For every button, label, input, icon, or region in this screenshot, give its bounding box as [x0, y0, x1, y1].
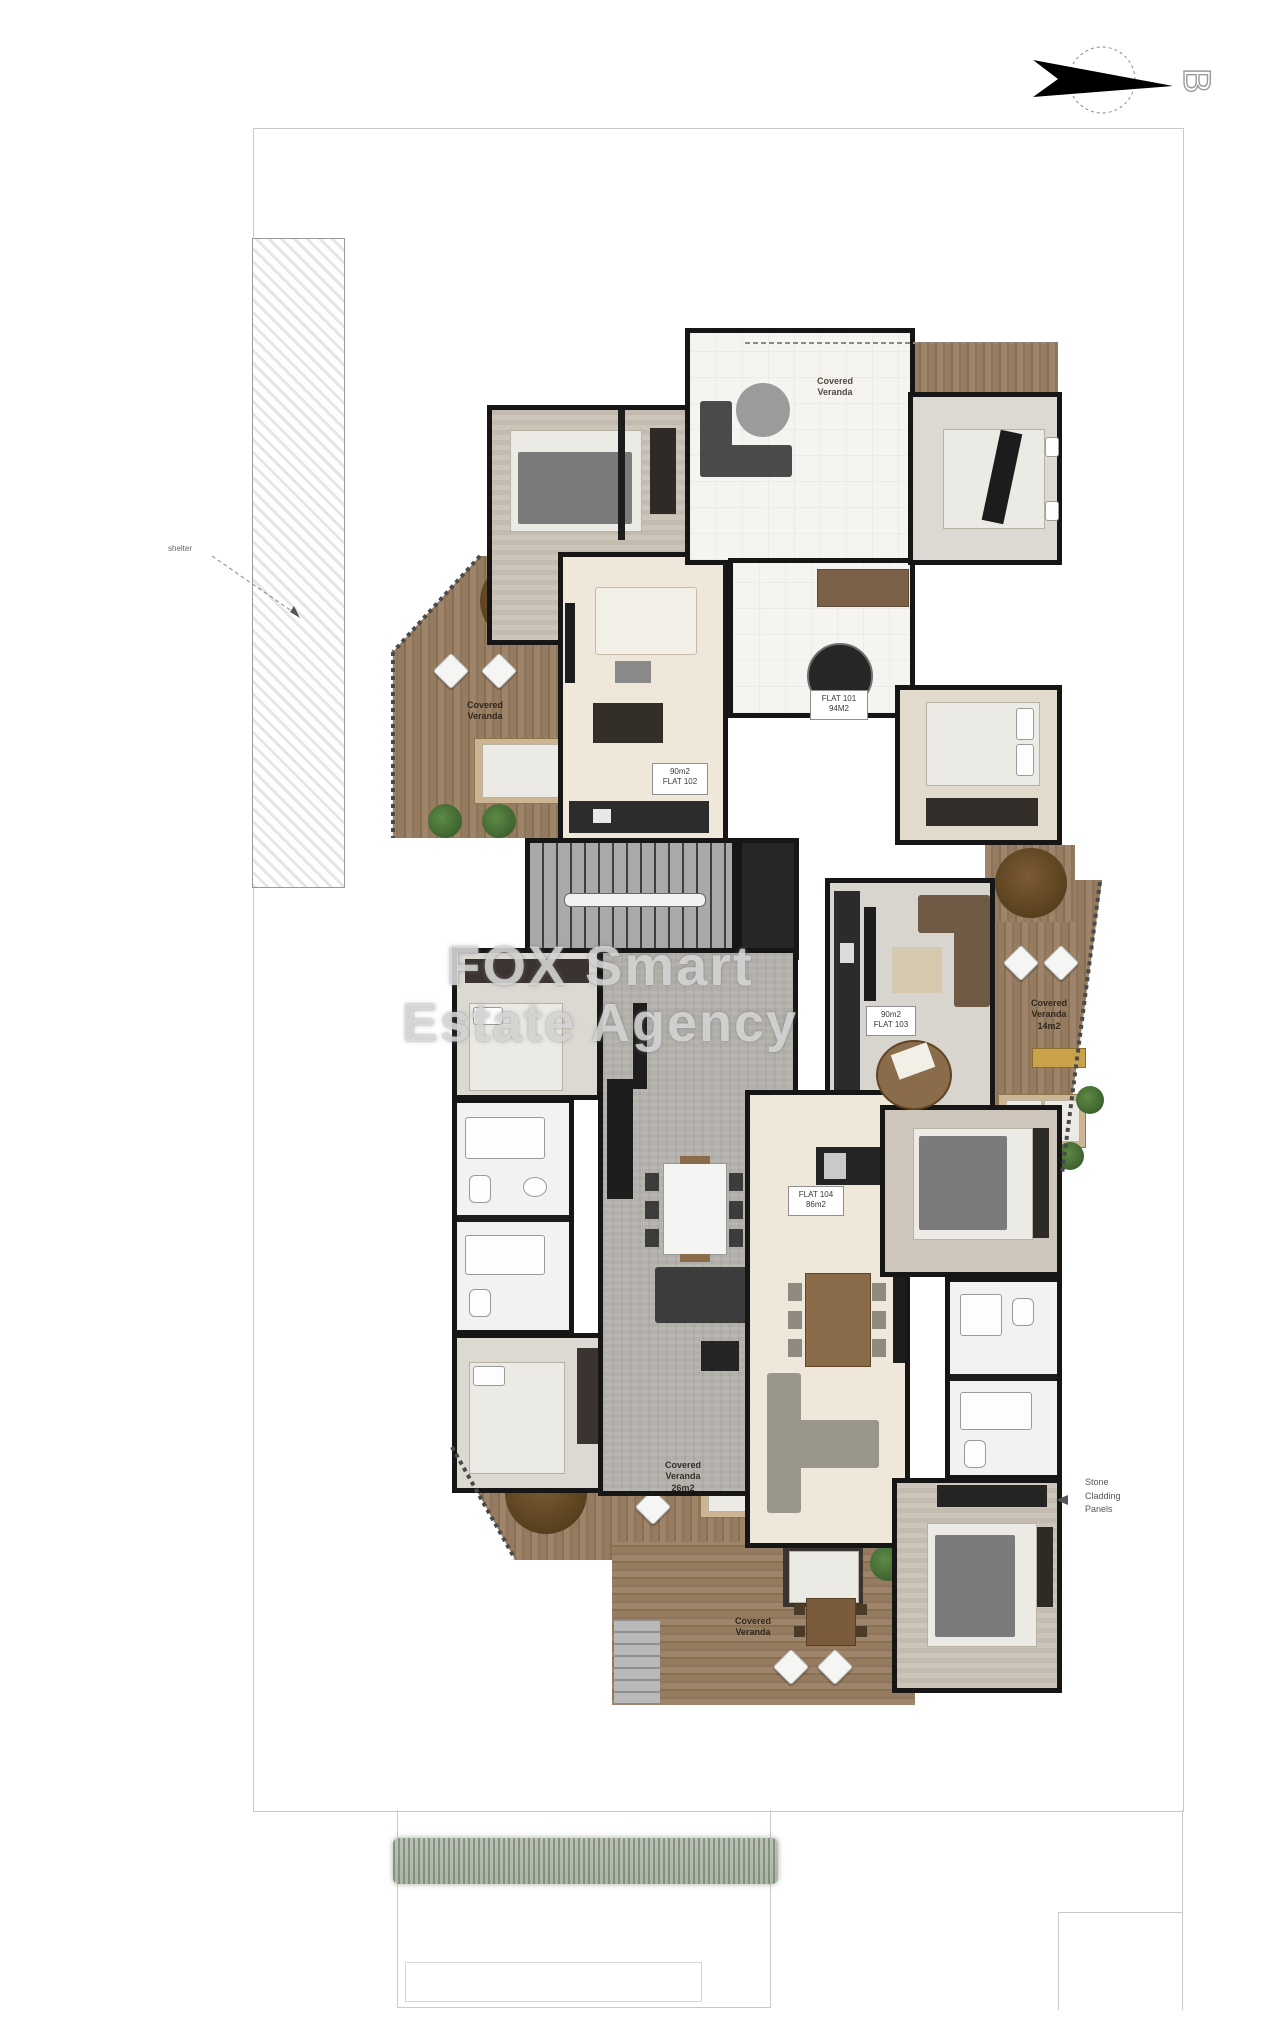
living-room-flat-top: [685, 328, 915, 565]
dining-chair: [645, 1229, 659, 1247]
bathtub: [465, 1235, 545, 1275]
table-runner: [891, 1042, 936, 1079]
site-parking-rect: [405, 1962, 702, 2002]
sofa: [954, 895, 990, 1007]
bedroom-br-2: [892, 1478, 1062, 1693]
bed-blanket: [935, 1535, 1015, 1637]
site-line-right3: [1058, 1912, 1183, 1913]
site-line-right2: [1182, 1810, 1183, 2010]
dining-chair: [729, 1229, 743, 1247]
table-end: [680, 1156, 710, 1164]
bathrooms-bl: [452, 1098, 574, 1335]
wardrobe: [1037, 1527, 1053, 1607]
outdoor-table: [806, 1598, 856, 1646]
north-arrow-icon: [1033, 60, 1173, 97]
kitchen-counter: [817, 569, 909, 607]
pillow: [473, 1366, 505, 1386]
outdoor-chair: [794, 1604, 805, 1615]
veranda-top-label: CoveredVeranda: [800, 376, 870, 399]
pillow: [1016, 708, 1034, 740]
bathrooms-br: [945, 1277, 1062, 1480]
stone-cladding-note: Stone Cladding Panels: [1085, 1476, 1155, 1517]
tv-unit: [893, 1263, 905, 1363]
watermark: FOX Smart Estate Agency: [340, 938, 860, 1053]
kitchen-sink: [593, 809, 611, 823]
toilet: [469, 1175, 491, 1203]
flat-bottom-label: FLAT 10486m2: [788, 1186, 844, 1216]
nightstand: [1045, 501, 1059, 521]
bathtub: [960, 1392, 1032, 1430]
dining-chair: [788, 1283, 802, 1301]
bedroom-mid-right: [895, 685, 1062, 845]
compass-letter: B: [1175, 68, 1217, 93]
shower: [960, 1294, 1002, 1336]
north-arrow-compass: B: [980, 18, 1260, 128]
dining-table: [663, 1163, 727, 1255]
plant-icon: [1076, 1086, 1104, 1114]
bedroom-top-right: [908, 392, 1062, 565]
tree-icon: [995, 848, 1067, 918]
dining-chair: [788, 1311, 802, 1329]
nightstand: [1045, 437, 1059, 457]
veranda-bottom-left-label: CoveredVeranda26m2: [650, 1460, 716, 1494]
daybed-mattress: [482, 744, 562, 798]
outdoor-cushion-bench: [1032, 1048, 1086, 1068]
stair-handrail: [564, 893, 706, 907]
interior-wall: [618, 410, 625, 540]
tv-unit: [864, 907, 876, 1001]
tv-unit: [565, 603, 575, 683]
watermark-line1: FOX Smart: [340, 938, 860, 994]
flat-left-label: 90m2FLAT 102: [652, 763, 708, 795]
dining-table: [805, 1273, 871, 1367]
window-sill: [937, 1485, 1047, 1507]
dining-chair: [729, 1201, 743, 1219]
dining-chair: [645, 1201, 659, 1219]
sink: [523, 1177, 547, 1197]
table-end: [680, 1254, 710, 1262]
kitchen-counter: [607, 1079, 633, 1199]
veranda-bottom-center-label: CoveredVeranda: [722, 1616, 784, 1639]
dining-chair: [788, 1339, 802, 1357]
flat-top-label: FLAT 10194M2: [810, 690, 868, 720]
pillow: [1016, 744, 1034, 776]
wardrobe: [650, 428, 676, 514]
shelter-label: shelter: [168, 543, 192, 555]
wardrobe: [926, 798, 1038, 826]
outdoor-chair: [856, 1604, 867, 1615]
outdoor-chair: [856, 1626, 867, 1637]
coffee-table: [701, 1341, 739, 1371]
dining-chair: [872, 1339, 886, 1357]
veranda-right-label: CoveredVeranda14m2: [1014, 998, 1084, 1032]
interior-wall: [457, 1215, 569, 1222]
bedroom-br-1: [880, 1105, 1062, 1277]
round-dining-table: [876, 1040, 952, 1110]
plant-icon: [482, 804, 516, 838]
bed-blanket: [518, 452, 632, 524]
dining-chair: [729, 1173, 743, 1191]
veranda-left-label: CoveredVeranda: [448, 700, 522, 723]
round-rug: [736, 383, 790, 437]
kitchen-appliance: [824, 1153, 846, 1179]
hedge: [393, 1838, 778, 1884]
kitchen-counter: [569, 801, 709, 833]
sofa: [767, 1420, 879, 1468]
outdoor-chair: [794, 1626, 805, 1637]
exterior-steps: [614, 1620, 660, 1703]
coffee-table: [615, 661, 651, 683]
sofa: [700, 445, 792, 477]
dining-chair: [872, 1311, 886, 1329]
covered-parking-hatch: [252, 238, 345, 888]
toilet: [964, 1440, 986, 1468]
flat-right-label: 90m2FLAT 103: [866, 1006, 916, 1036]
toilet: [1012, 1298, 1034, 1326]
bedroom-bl-2: [452, 1333, 612, 1493]
floor-plan-canvas: shelter B CoveredVeranda Cove: [0, 0, 1280, 2025]
toilet: [469, 1289, 491, 1317]
bed-mattress: [789, 1551, 859, 1603]
bed-blanket: [919, 1136, 1007, 1230]
living-room-flat-left: [558, 552, 728, 857]
watermark-line2: Estate Agency: [340, 994, 860, 1053]
dining-chair: [872, 1283, 886, 1301]
plant-icon: [428, 804, 462, 838]
site-line-right4: [1058, 1912, 1059, 2010]
bathtub: [465, 1117, 545, 1159]
interior-wall: [950, 1374, 1057, 1381]
dining-table: [593, 703, 663, 743]
sofa: [595, 587, 697, 655]
dining-chair: [645, 1173, 659, 1191]
site-line-bottom: [397, 2007, 771, 2008]
headboard: [1033, 1128, 1049, 1238]
rug: [892, 947, 942, 993]
